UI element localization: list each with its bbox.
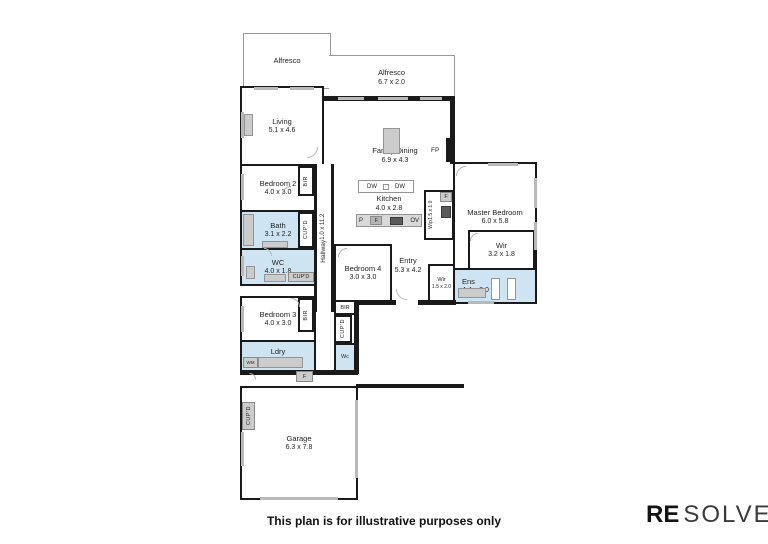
fridge-box: F: [370, 216, 382, 225]
door-arc: [396, 278, 418, 300]
brand-logo-bold: RE: [646, 501, 679, 529]
room-dims: 6.7 x 2.0: [378, 78, 405, 87]
kitchen-bench: P F OV: [356, 214, 422, 227]
wip-label-stack: Wip 1.5 x 1.0: [428, 201, 435, 229]
oven-label: OV: [410, 218, 419, 224]
laundry-bench-icon: [258, 357, 303, 368]
room-dims: 3.1 x 2.2: [265, 230, 292, 239]
window-seat-icon: [244, 114, 253, 136]
shower-screen-icon: [507, 278, 516, 300]
room-dims: 3.0 x 3.0: [350, 273, 377, 282]
window: [241, 174, 244, 200]
room-label: Ens: [462, 277, 475, 287]
wall-porch-edge: [356, 384, 464, 388]
dishwasher-label: DW: [395, 184, 405, 190]
room-hallway: Hallway 1.0 x 11.2: [314, 164, 334, 312]
window: [241, 432, 244, 466]
room-kitchen: Kitchen 4.0 x 2.8: [356, 194, 422, 213]
wall-entry-bottom-left: [356, 300, 396, 305]
closet-bir-bedroom-2: BIR: [298, 166, 314, 196]
closet-label: CUP'D: [293, 274, 310, 280]
shower-screen-icon: [491, 278, 500, 300]
room-dims: 1.0 x 11.2: [320, 214, 328, 240]
window: [534, 222, 537, 250]
room-dims: 3.2 x 1.8: [488, 250, 515, 259]
window: [488, 163, 518, 166]
appliance-icon: [441, 206, 451, 218]
cooktop-icon: [390, 217, 403, 225]
washing-machine-label: WM: [247, 360, 255, 365]
room-label: Entry: [382, 256, 434, 266]
room-label: Master Bedroom: [465, 208, 525, 218]
room-label: Wir: [496, 241, 507, 251]
room-label: Wir: [437, 277, 445, 284]
window: [355, 400, 358, 478]
closet-label: BIR: [303, 176, 309, 187]
closet-label: CUP'D: [340, 319, 346, 338]
wc-vanity-icon: [264, 274, 286, 282]
fridge-wip-box: F: [440, 192, 452, 202]
fireplace-label: FP: [431, 147, 439, 154]
fridge-label: F: [375, 218, 378, 224]
closet-bir-bedroom-3: BIR: [298, 298, 314, 332]
pantry-label: P: [359, 218, 363, 224]
window: [468, 301, 494, 304]
room-entry: Entry 5.3 x 4.2: [382, 256, 434, 275]
room-label: Bath: [270, 221, 285, 231]
closet-label: CUP'D: [246, 406, 252, 425]
fridge-laundry-box: F: [296, 371, 313, 382]
window: [241, 306, 244, 332]
window: [254, 87, 278, 90]
closet-cupboard-wc: CUP'D: [288, 272, 314, 282]
closet-cupboard-bath: CUP'D: [298, 212, 314, 248]
kitchen-island: DW DW: [358, 180, 414, 193]
room-label: Bedroom 3: [260, 310, 297, 320]
fridge-label: F: [303, 374, 306, 380]
brand-logo: RE SOLVE: [646, 501, 768, 529]
room-label: Living: [272, 117, 292, 127]
closet-bir-entry: BIR: [334, 300, 356, 315]
room-label: Wip: [428, 220, 435, 229]
room-label: WC: [272, 258, 285, 268]
brand-logo-light: SOLVE: [683, 501, 768, 529]
room-dims: 6.3 x 7.8: [286, 443, 313, 452]
garage-door: [260, 497, 338, 500]
window: [338, 97, 364, 100]
closet-cupboard-entry: CUP'D: [334, 315, 352, 343]
closet-label: BIR: [303, 310, 309, 321]
toilet-icon: [246, 266, 255, 279]
sink-icon: [383, 184, 389, 190]
room-label: Hallway: [320, 240, 328, 263]
window: [290, 87, 314, 90]
room-garage: Garage 6.3 x 7.8: [240, 386, 358, 500]
room-label: Kitchen: [356, 194, 422, 204]
washing-machine-box: WM: [243, 357, 258, 368]
window: [241, 256, 244, 276]
room-wc-small: Wc: [334, 343, 356, 373]
room-dims: 5.3 x 4.2: [382, 266, 434, 275]
ensuite-vanity-icon: [458, 288, 486, 298]
floor-plan: Alfresco Alfresco 6.7 x 2.0 Living 5.1 x…: [0, 0, 768, 544]
fireplace-icon: [446, 138, 455, 162]
room-alfresco-left: Alfresco: [243, 33, 331, 89]
window: [420, 97, 442, 100]
closet-label: BIR: [340, 305, 349, 311]
tv-unit-icon: [383, 128, 400, 154]
hallway-label-stack: Hallway 1.0 x 11.2: [320, 214, 328, 263]
window: [534, 178, 537, 208]
bath-tub-icon: [243, 214, 254, 246]
room-dims: 1.5 x 2.0: [432, 284, 451, 291]
room-wir-master: Wir 3.2 x 1.8: [468, 230, 535, 270]
room-dims: 6.9 x 4.3: [345, 156, 445, 165]
room-dims: 5.1 x 4.6: [269, 126, 296, 135]
room-alfresco-right: Alfresco 6.7 x 2.0: [329, 55, 455, 100]
room-label: Bedroom 4: [345, 264, 382, 274]
room-dims: 4.0 x 2.8: [356, 204, 422, 213]
fridge-label: F: [444, 194, 447, 200]
closet-label: CUP'D: [303, 220, 309, 239]
dishwasher-label: DW: [367, 184, 377, 190]
room-label: Garage: [286, 434, 311, 444]
window: [378, 97, 408, 100]
room-label: Wc: [341, 354, 349, 361]
closet-cupboard-garage: CUP'D: [242, 402, 255, 430]
wall-entry-bottom-right: [418, 300, 456, 305]
bath-vanity-icon: [262, 241, 288, 248]
room-dims: 4.0 x 3.0: [265, 319, 292, 328]
room-label: Alfresco: [378, 68, 405, 78]
room-dims: 1.5 x 1.0: [428, 201, 435, 220]
room-dims: 6.0 x 5.8: [482, 217, 509, 226]
room-label: Alfresco: [273, 56, 300, 66]
room-label: Ldry: [271, 347, 286, 357]
